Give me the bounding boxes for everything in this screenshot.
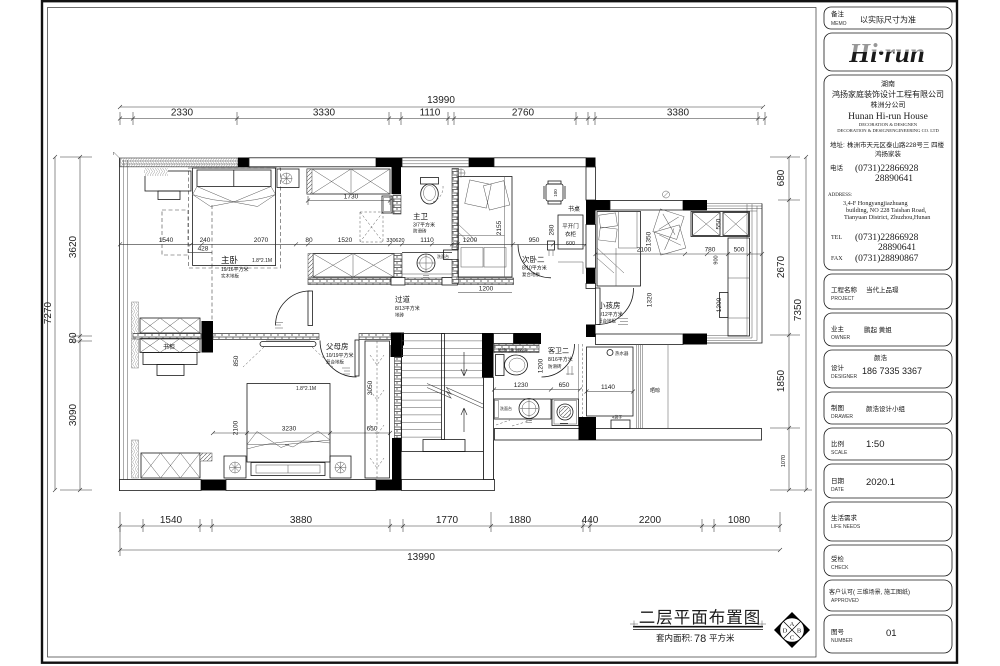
svg-text:颜浩: 颜浩 [874, 353, 888, 362]
svg-text:680: 680 [776, 169, 787, 186]
svg-text:01: 01 [886, 628, 897, 639]
svg-text:晒晾: 晒晾 [650, 387, 660, 394]
svg-text:主卫: 主卫 [413, 211, 428, 221]
svg-text:以实际尺寸为准: 以实际尺寸为准 [860, 15, 916, 25]
svg-text:TEL: TEL [831, 235, 842, 241]
svg-text:洗面台: 洗面台 [500, 405, 512, 411]
svg-text:受检: 受检 [831, 554, 845, 563]
svg-text:LIFE NEEDS: LIFE NEEDS [831, 524, 861, 530]
svg-text:D: D [783, 628, 788, 635]
svg-text:13990: 13990 [427, 95, 455, 106]
svg-text:3880: 3880 [290, 515, 313, 526]
svg-text:次卧二: 次卧二 [522, 254, 545, 264]
svg-text:备注: 备注 [831, 9, 845, 18]
svg-text:3/7平方米: 3/7平方米 [413, 222, 435, 229]
svg-text:DESIGNER: DESIGNER [831, 374, 858, 380]
svg-text:building, NO 228 Taishan Road,: building, NO 228 Taishan Road, [846, 207, 927, 214]
svg-text:1070: 1070 [781, 455, 787, 467]
svg-text:900: 900 [714, 255, 720, 264]
svg-text:780: 780 [705, 247, 716, 254]
svg-text:平开门: 平开门 [562, 222, 579, 230]
svg-text:工程名称: 工程名称 [831, 285, 858, 294]
svg-text:3330: 3330 [313, 108, 336, 119]
svg-text:书柜: 书柜 [163, 343, 175, 351]
svg-text:株洲分公司: 株洲分公司 [871, 100, 906, 109]
svg-text:8/13平方米: 8/13平方米 [395, 305, 420, 312]
svg-text:550: 550 [716, 218, 723, 229]
svg-text:19/16平方米: 19/16平方米 [221, 266, 249, 273]
svg-text:3090: 3090 [68, 403, 79, 426]
svg-text:4袋子: 4袋子 [612, 414, 622, 420]
svg-text:洗面台: 洗面台 [437, 253, 449, 259]
svg-text:80: 80 [305, 237, 313, 244]
svg-text:图号: 图号 [831, 628, 845, 636]
svg-text:28890641: 28890641 [878, 243, 916, 253]
svg-text:父母房: 父母房 [326, 341, 349, 351]
svg-text:MEMO: MEMO [831, 21, 847, 27]
svg-text:100: 100 [553, 189, 558, 197]
svg-text:NUMBER: NUMBER [831, 638, 853, 644]
svg-text:3,4-F Hongyangjiazhuang: 3,4-F Hongyangjiazhuang [843, 200, 908, 207]
svg-text:鹏起 黄姐: 鹏起 黄姐 [864, 325, 892, 334]
svg-text:电话: 电话 [830, 163, 844, 172]
svg-text:湖南: 湖南 [881, 79, 895, 88]
svg-text:SCALE: SCALE [831, 450, 848, 456]
svg-text:330: 330 [386, 238, 395, 244]
svg-text:3230: 3230 [282, 426, 297, 433]
svg-text:1110: 1110 [420, 237, 434, 244]
svg-text:过道: 过道 [395, 294, 410, 304]
svg-text:地址:: 地址: [830, 140, 845, 149]
svg-text:DECORATION & DESIGNENGINEERING: DECORATION & DESIGNENGINEERING CO. LTD [837, 128, 939, 133]
svg-text:1540: 1540 [159, 237, 174, 244]
svg-text:比例: 比例 [831, 439, 844, 448]
svg-text:13990: 13990 [407, 552, 435, 563]
svg-text:平方米: 平方米 [709, 633, 735, 643]
svg-text:1080: 1080 [728, 515, 751, 526]
svg-text:1850: 1850 [776, 369, 787, 392]
svg-text:1110: 1110 [420, 108, 441, 119]
svg-text:(0731)22866928: (0731)22866928 [855, 232, 919, 243]
svg-text:DRAWER: DRAWER [831, 414, 853, 420]
svg-text:APPROVED: APPROVED [831, 598, 859, 604]
svg-text:当代上品璟: 当代上品璟 [866, 285, 899, 294]
svg-text:生活需求: 生活需求 [831, 513, 858, 522]
svg-text:2760: 2760 [512, 108, 535, 119]
svg-text:A: A [790, 621, 795, 628]
svg-text:主卧: 主卧 [221, 255, 239, 265]
svg-text:78: 78 [694, 633, 706, 645]
svg-text:PROJECT: PROJECT [831, 296, 854, 302]
svg-text:1200: 1200 [538, 358, 545, 373]
svg-text:1540: 1540 [160, 515, 183, 526]
svg-text:2070: 2070 [254, 237, 269, 244]
svg-text:1730: 1730 [344, 194, 359, 201]
svg-text:440: 440 [582, 515, 599, 526]
svg-text:Hunan Hi-run House: Hunan Hi-run House [848, 112, 928, 122]
svg-text:1880: 1880 [509, 515, 532, 526]
svg-text:地砖: 地砖 [395, 312, 404, 319]
svg-text:设计: 设计 [831, 363, 845, 372]
svg-text:1200: 1200 [479, 286, 494, 293]
svg-text:防滑砖: 防滑砖 [413, 228, 427, 235]
svg-text:1350: 1350 [646, 231, 653, 246]
svg-text:2020.1: 2020.1 [866, 477, 895, 488]
svg-text:1320: 1320 [647, 292, 654, 307]
svg-text:1200: 1200 [716, 297, 723, 312]
svg-text:复合地板: 复合地板 [326, 359, 344, 366]
svg-text:书桌: 书桌 [568, 205, 580, 213]
svg-text:10/19平方米: 10/19平方米 [326, 352, 354, 359]
svg-text:衣柜: 衣柜 [565, 230, 577, 238]
svg-text:小孩房: 小孩房 [598, 300, 621, 310]
svg-text:3380: 3380 [667, 108, 690, 119]
svg-text:186 7335 3367: 186 7335 3367 [862, 366, 922, 376]
svg-text:业主: 业主 [831, 324, 845, 333]
svg-text:客卫二: 客卫二 [548, 346, 569, 355]
svg-text:客户认可( 三维场景, 施工图纸): 客户认可( 三维场景, 施工图纸) [829, 588, 910, 596]
svg-text:OWNER: OWNER [831, 335, 851, 341]
svg-text:3050: 3050 [367, 380, 374, 395]
svg-text:850: 850 [233, 355, 240, 366]
svg-text:FAX: FAX [831, 256, 843, 262]
svg-text:(0731)22866928: (0731)22866928 [855, 163, 919, 174]
svg-text:28890641: 28890641 [875, 174, 913, 184]
svg-text:80: 80 [68, 332, 79, 344]
svg-text:2100: 2100 [233, 420, 240, 435]
svg-text:制图: 制图 [831, 403, 844, 412]
svg-text:1230: 1230 [514, 382, 529, 389]
svg-text:株洲市天元区泰山路228号三 四楼: 株洲市天元区泰山路228号三 四楼 [847, 140, 945, 149]
svg-text:鸿扬家庭装饰设计工程有限公司: 鸿扬家庭装饰设计工程有限公司 [832, 89, 944, 99]
svg-text:500: 500 [734, 247, 745, 254]
svg-text:650: 650 [559, 382, 570, 389]
svg-text:1140: 1140 [601, 384, 615, 391]
svg-text:600: 600 [566, 241, 575, 247]
svg-text:240: 240 [200, 237, 211, 244]
svg-text:7350: 7350 [793, 298, 804, 321]
svg-text:防滑砖: 防滑砖 [548, 363, 562, 370]
svg-text:Tianyuan District, Zhuzhou,Hun: Tianyuan District, Zhuzhou,Hunan [844, 214, 930, 221]
svg-text:620: 620 [395, 238, 404, 244]
svg-text:1:50: 1:50 [866, 439, 885, 450]
svg-text:CHECK: CHECK [831, 565, 849, 571]
svg-text:鸿扬家装: 鸿扬家装 [875, 149, 902, 158]
svg-text:日期: 日期 [831, 477, 845, 485]
svg-text:DATE: DATE [831, 487, 845, 493]
svg-text:428: 428 [198, 246, 209, 253]
svg-text:2670: 2670 [776, 255, 787, 278]
svg-text:3620: 3620 [68, 235, 79, 258]
svg-text:1520: 1520 [338, 237, 353, 244]
svg-text:1.8*2.1M: 1.8*2.1M [252, 258, 272, 264]
svg-text:二层平面布置图: 二层平面布置图 [639, 608, 762, 627]
svg-text:Hi·run: Hi·run [848, 38, 925, 68]
svg-text:1.8*2.1M: 1.8*2.1M [296, 386, 316, 392]
svg-text:颜浩设计小组: 颜浩设计小组 [866, 404, 906, 413]
svg-text:玻璃门盒 淋浴房: 玻璃门盒 淋浴房 [498, 347, 527, 353]
svg-text:2100: 2100 [637, 247, 652, 254]
svg-text:ADDRESS:: ADDRESS: [828, 193, 852, 198]
svg-text:DECORATION & DESIGNEN: DECORATION & DESIGNEN [859, 122, 918, 127]
svg-text:复合地板: 复合地板 [522, 271, 540, 278]
svg-text:B: B [797, 628, 802, 635]
svg-text:2330: 2330 [171, 108, 194, 119]
svg-text:650: 650 [367, 426, 378, 433]
svg-text:950: 950 [529, 237, 540, 244]
svg-text:C: C [790, 635, 794, 642]
svg-text:套内面积:: 套内面积: [656, 633, 692, 643]
svg-text:7270: 7270 [43, 301, 54, 324]
svg-text:2200: 2200 [639, 515, 662, 526]
svg-text:280: 280 [549, 224, 556, 235]
svg-text:(0731)28890867: (0731)28890867 [855, 253, 919, 264]
svg-text:实木地板: 实木地板 [221, 273, 239, 280]
svg-text:热水器: 热水器 [615, 350, 629, 357]
svg-text:1770: 1770 [436, 515, 459, 526]
svg-text:2155: 2155 [496, 220, 503, 235]
